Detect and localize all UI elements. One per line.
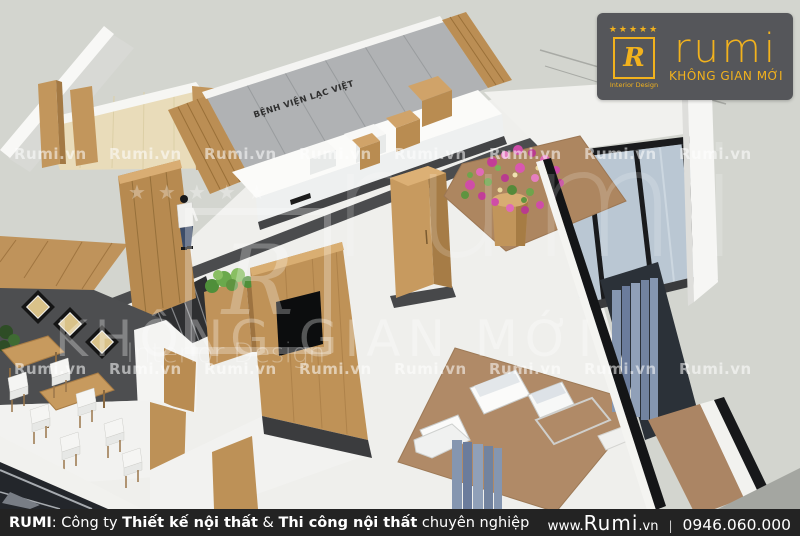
footer-tld: .vn (638, 519, 658, 534)
footer-separator: | (668, 519, 672, 533)
logo-tagline: KHÔNG GIAN MỚI (669, 69, 783, 83)
brand-logo: ★★★★★ R Interior Design rumi KHÔNG GIAN … (597, 13, 793, 100)
footer-domain: Rumi (584, 511, 639, 535)
promo-image: BỆNH VIỆN LẠC VIỆT (0, 0, 800, 536)
footer-amp: & (258, 515, 279, 531)
logo-subtitle: Interior Design (610, 81, 658, 89)
footer-phone: 0946.060.000 (683, 516, 791, 534)
logo-brand-name: rumi (674, 30, 778, 68)
footer-bar: RUMI: Công ty Thiết kế nội thất & Thi cô… (0, 509, 800, 536)
logo-monogram: R (623, 45, 645, 71)
footer-seg2: Thiết kế nội thất (122, 515, 258, 531)
footer-slogan: RUMI: Công ty Thiết kế nội thất & Thi cô… (9, 515, 529, 531)
logo-monogram-box: R (613, 37, 655, 79)
footer-colon: : (52, 515, 62, 531)
logo-emblem: ★★★★★ R Interior Design (605, 25, 663, 89)
footer-seg1: Công ty (61, 515, 122, 531)
footer-seg3: Thi công nội thất (278, 515, 417, 531)
logo-wordmark: rumi KHÔNG GIAN MỚI (667, 30, 785, 83)
footer-www: www. (547, 518, 583, 534)
footer-contact: www.Rumi.vn|0946.060.000 (547, 511, 791, 535)
footer-company: RUMI (9, 515, 52, 531)
logo-stars: ★★★★★ (609, 25, 659, 35)
footer-seg4: chuyên nghiệp (417, 515, 529, 531)
